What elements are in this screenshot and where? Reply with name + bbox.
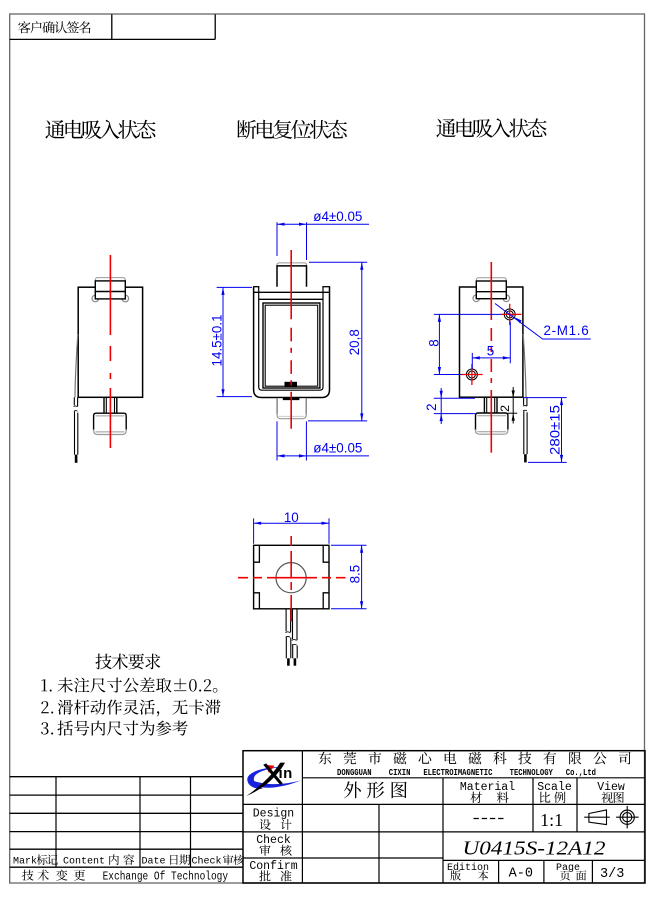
svg-text:ø4±0.05: ø4±0.05 [313,441,362,456]
svg-text:Check: Check [256,834,291,847]
svg-text:Check: Check [192,856,222,868]
svg-text:Date: Date [142,857,166,868]
svg-text:Confirm: Confirm [249,860,297,873]
svg-text:2-M1.6: 2-M1.6 [544,323,590,338]
svg-text:View: View [597,781,625,794]
svg-text:1:1: 1:1 [540,810,563,830]
svg-text:DONGGUAN CIXIN ELECTROIMA: DONGGUAN CIXIN ELECTROIMAGNETIC TECHNOLO… [337,767,596,778]
svg-text:Page: Page [556,863,580,874]
svg-text:in: in [279,765,293,782]
svg-text:3/3: 3/3 [600,867,624,882]
svg-text:5: 5 [487,343,494,358]
svg-text:U0415S-12A12: U0415S-12A12 [463,838,606,860]
svg-text:10: 10 [284,510,299,525]
svg-text:280±15: 280±15 [547,405,562,455]
svg-text:Mark: Mark [13,856,37,868]
svg-text:Exchange Of Technology: Exchange Of Technology [103,870,229,883]
svg-text:ø4±0.05: ø4±0.05 [313,209,362,224]
svg-text:8.5: 8.5 [348,565,363,584]
svg-text:Design: Design [253,807,294,820]
svg-text:20,8: 20,8 [347,329,362,355]
svg-text:2: 2 [498,405,512,412]
svg-text:Content: Content [63,857,105,868]
svg-text:Scale: Scale [537,781,572,794]
svg-text:2: 2 [424,403,439,410]
svg-text:14.5±0.1: 14.5±0.1 [209,314,224,366]
svg-text:8: 8 [427,339,442,346]
svg-text:A-0: A-0 [509,867,533,882]
